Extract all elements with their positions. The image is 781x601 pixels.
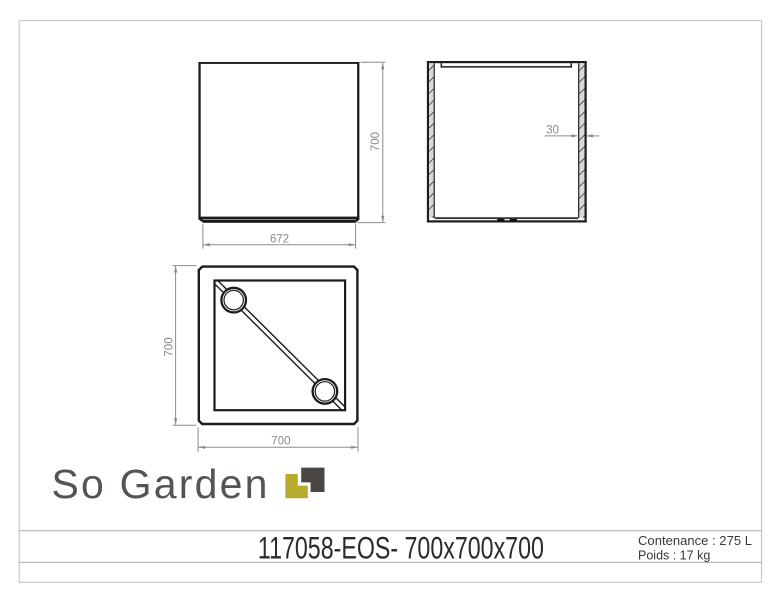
- svg-text:672: 672: [270, 234, 289, 246]
- svg-text:700: 700: [163, 337, 175, 356]
- svg-text:So Garden: So Garden: [52, 461, 270, 507]
- svg-text:700: 700: [370, 132, 382, 151]
- svg-text:Poids : 17 kg: Poids : 17 kg: [638, 548, 710, 562]
- svg-text:30: 30: [546, 124, 559, 136]
- svg-text:Contenance : 275 L: Contenance : 275 L: [638, 534, 752, 548]
- svg-text:700: 700: [271, 436, 290, 448]
- svg-text:117058-EOS- 700x700x700: 117058-EOS- 700x700x700: [258, 530, 544, 566]
